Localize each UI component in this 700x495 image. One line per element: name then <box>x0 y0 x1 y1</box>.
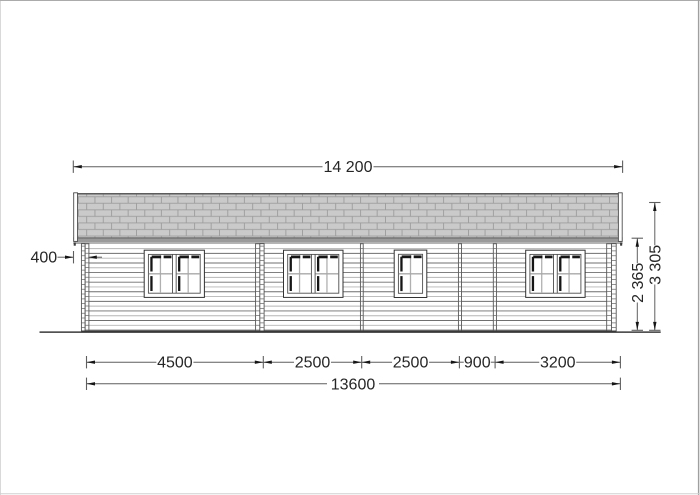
svg-text:400: 400 <box>30 250 57 267</box>
svg-text:13600: 13600 <box>331 376 376 393</box>
svg-text:3 305: 3 305 <box>647 245 664 285</box>
svg-text:14 200: 14 200 <box>324 159 373 176</box>
svg-text:2500: 2500 <box>393 355 429 372</box>
svg-text:900: 900 <box>464 355 491 372</box>
svg-text:3200: 3200 <box>540 355 576 372</box>
svg-text:2500: 2500 <box>295 355 331 372</box>
svg-text:2 365: 2 365 <box>630 263 647 303</box>
svg-text:4500: 4500 <box>157 355 193 372</box>
